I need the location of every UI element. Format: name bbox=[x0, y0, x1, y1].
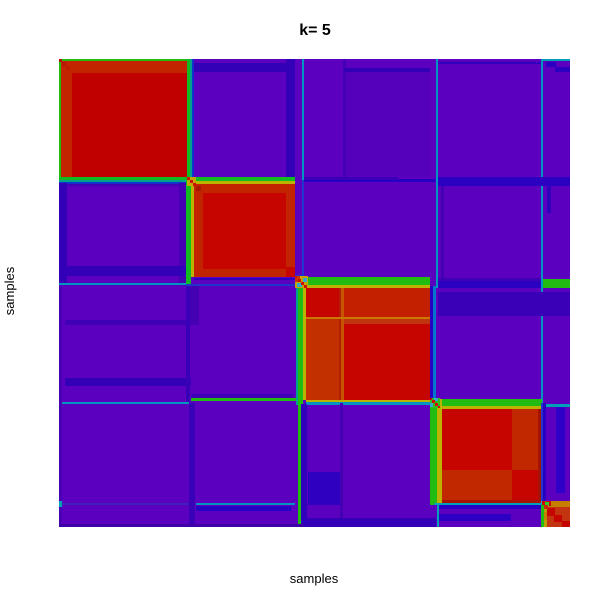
svg-text:k= 5: k= 5 bbox=[299, 22, 331, 39]
svg-text:samples: samples bbox=[2, 266, 17, 315]
svg-text:samples: samples bbox=[290, 571, 339, 586]
